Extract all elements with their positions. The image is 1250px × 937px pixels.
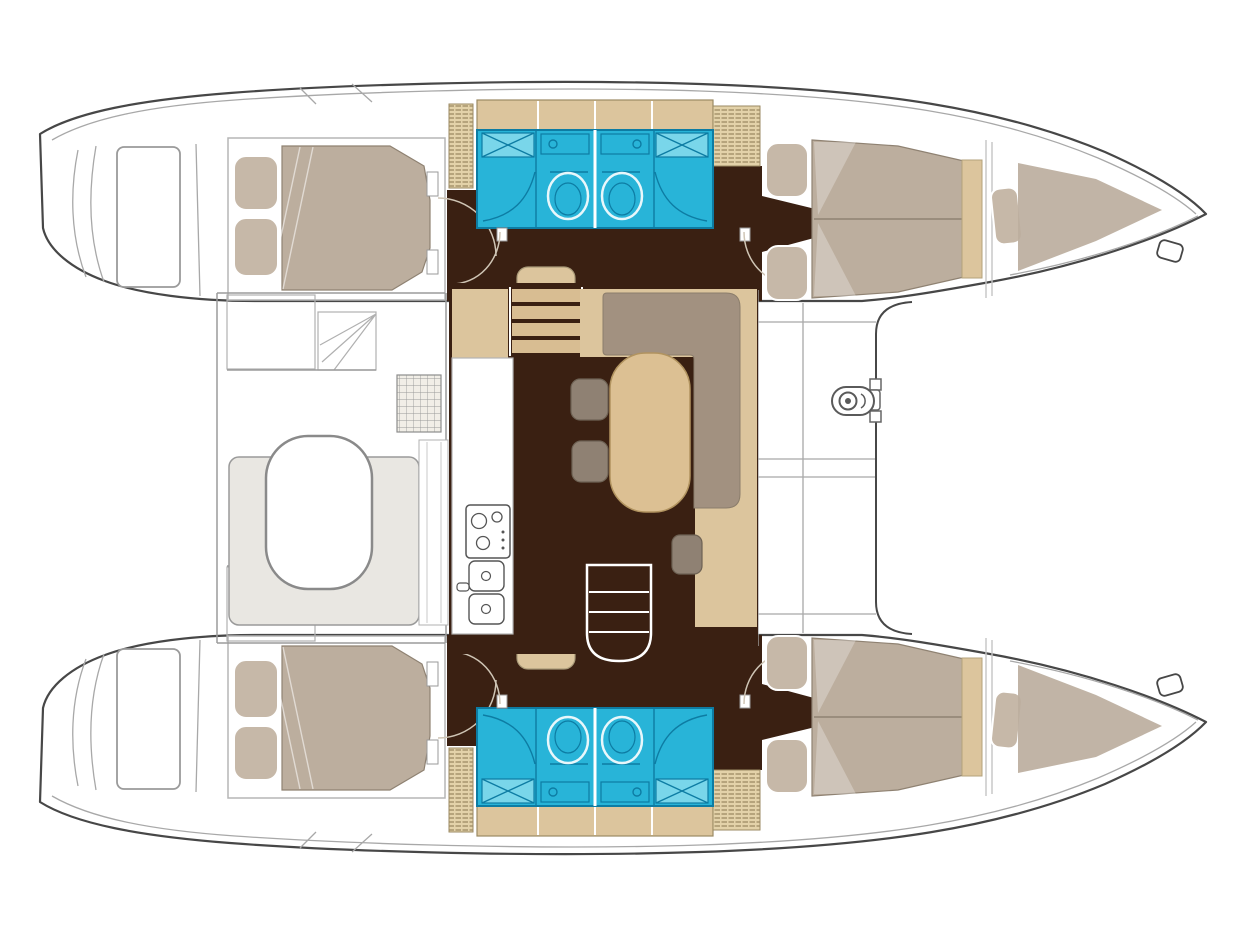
toilet [548, 173, 588, 219]
bed-shelf [962, 160, 982, 278]
pillow [990, 187, 1023, 246]
sink [469, 594, 504, 624]
bow-cleat [1156, 239, 1184, 263]
windlass [832, 379, 881, 422]
floor-plan-drawing [0, 0, 1250, 937]
pillow [766, 246, 808, 300]
faucet [457, 583, 469, 591]
aft-cabin-bed [234, 146, 430, 290]
vanity [541, 134, 589, 154]
pillow [234, 156, 278, 210]
galley-counter [452, 358, 513, 634]
bathroom-block [449, 100, 760, 228]
stool [571, 379, 608, 420]
stool [572, 441, 608, 482]
stool [672, 535, 702, 574]
dining-table [610, 353, 690, 512]
swim-step-platform [117, 147, 180, 287]
foredeck [758, 290, 912, 468]
storage-locker [713, 106, 760, 166]
door-jamb [427, 250, 438, 274]
catamaran-floor-plan [0, 0, 1250, 937]
cockpit [229, 436, 448, 625]
toilet [602, 173, 642, 219]
shower-grate [397, 375, 441, 432]
galley [452, 358, 513, 634]
pillow [234, 218, 278, 276]
storage-locker [449, 104, 473, 188]
door-jamb [427, 172, 438, 196]
cockpit-side-deck [419, 440, 448, 625]
sink [469, 561, 504, 591]
cockpit-table [266, 436, 372, 589]
pillow [766, 143, 808, 197]
stairs-starboard [587, 565, 651, 661]
